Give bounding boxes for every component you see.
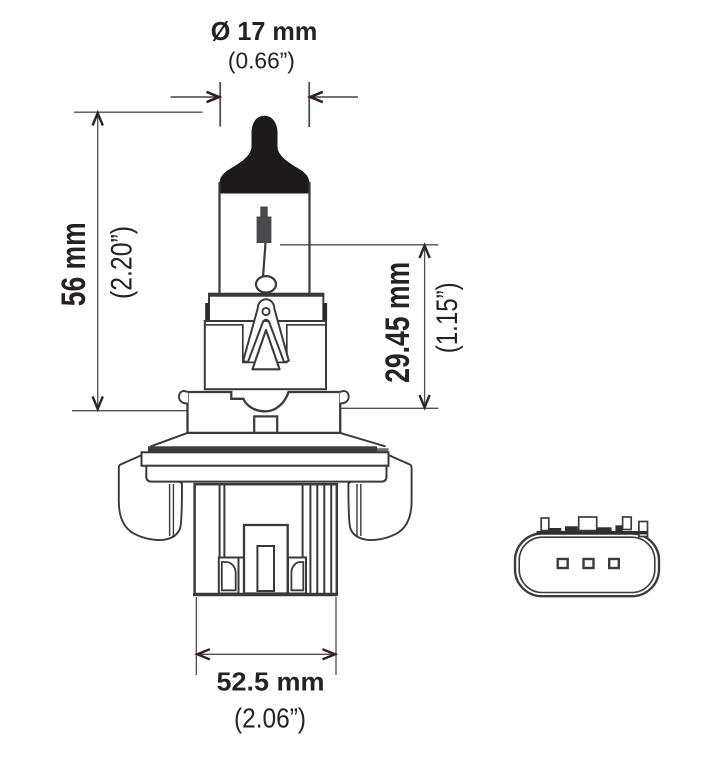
svg-text:(2.20”): (2.20”) [106,226,139,299]
svg-text:(0.66”): (0.66”) [228,48,295,74]
svg-text:(2.06”): (2.06”) [234,703,306,734]
svg-text:29.45 mm: 29.45 mm [379,262,417,383]
svg-text:(1.15”): (1.15”) [431,282,464,353]
svg-text:52.5 mm: 52.5 mm [217,667,325,697]
svg-text:56 mm: 56 mm [55,222,93,306]
svg-text:Ø 17 mm: Ø 17 mm [211,16,318,46]
